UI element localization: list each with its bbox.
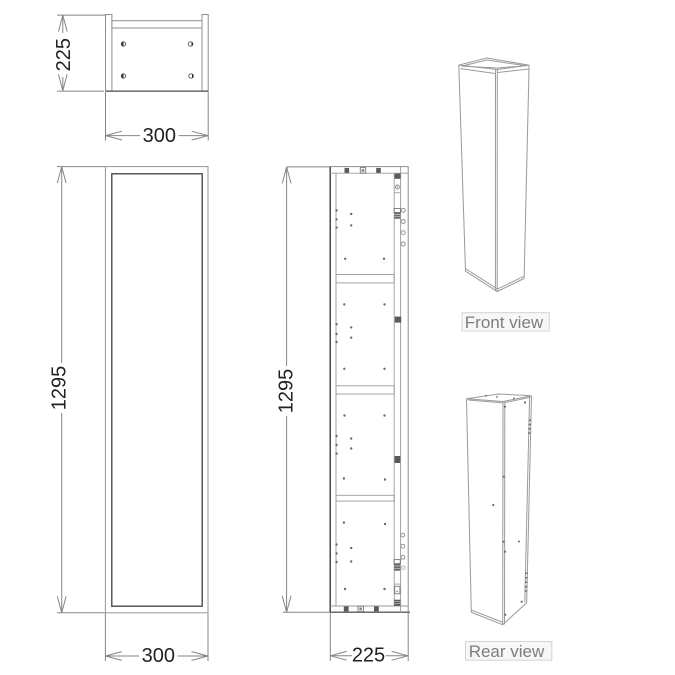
svg-text:300: 300 (143, 125, 176, 147)
svg-text:1295: 1295 (48, 366, 70, 411)
svg-text:Rear view: Rear view (469, 642, 545, 661)
svg-text:300: 300 (142, 645, 175, 667)
svg-text:1295: 1295 (276, 369, 298, 414)
svg-text:Front view: Front view (465, 313, 544, 332)
svg-text:225: 225 (352, 645, 385, 667)
svg-text:225: 225 (53, 38, 75, 71)
